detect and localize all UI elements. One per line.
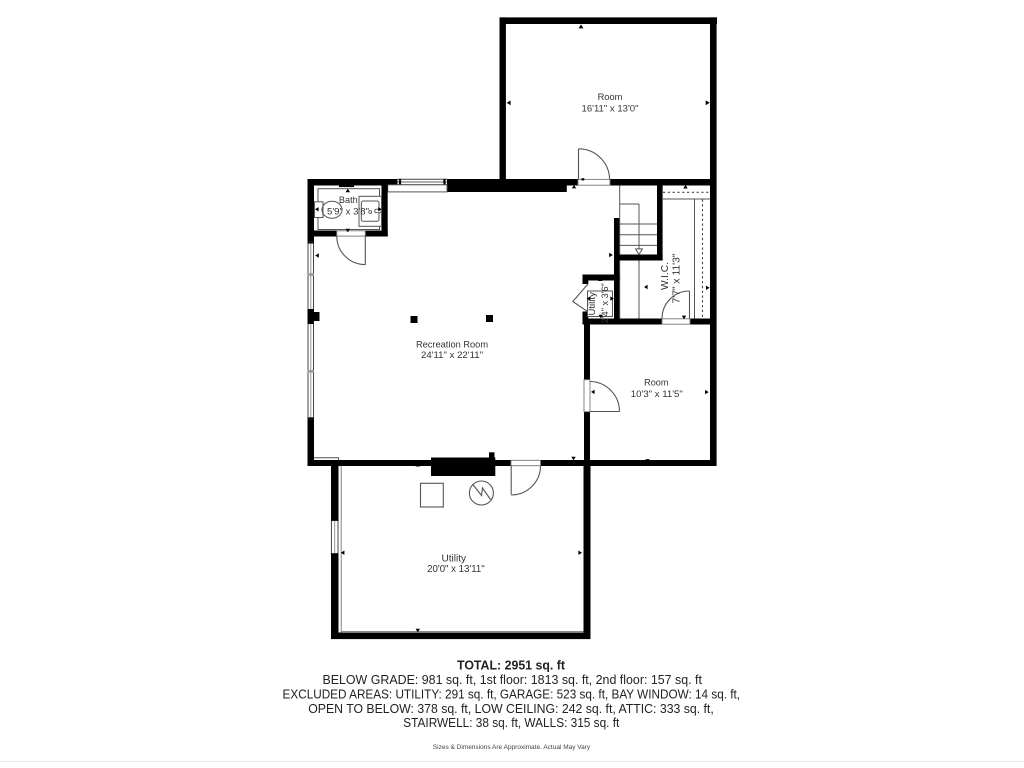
svg-text:Utility: Utility [587,291,597,315]
svg-text:BELOW GRADE: 981 sq. ft, 1st f: BELOW GRADE: 981 sq. ft, 1st floor: 1813… [322,673,702,687]
svg-text:Room: Room [598,91,623,102]
svg-text:OPEN TO BELOW: 378 sq. ft, LOW: OPEN TO BELOW: 378 sq. ft, LOW CEILING: … [308,702,714,716]
svg-text:16'11" x 13'0": 16'11" x 13'0" [582,102,639,113]
svg-text:W.I.C.: W.I.C. [660,262,671,290]
svg-text:Room: Room [644,376,668,387]
svg-text:EXCLUDED AREAS: UTILITY: 291 s: EXCLUDED AREAS: UTILITY: 291 sq. ft, GAR… [283,687,741,701]
svg-text:2'4" x 3'6": 2'4" x 3'6" [600,283,610,323]
svg-text:7'7" x 11'3": 7'7" x 11'3" [672,253,683,304]
svg-text:TOTAL: 2951 sq. ft: TOTAL: 2951 sq. ft [457,659,566,673]
svg-text:20'0" x 13'11": 20'0" x 13'11" [427,564,485,575]
svg-text:24'11" x 22'11": 24'11" x 22'11" [421,349,483,360]
svg-text:5'9" x 3'8": 5'9" x 3'8" [327,207,369,217]
svg-text:Sizes & Dimensions Are Approxi: Sizes & Dimensions Are Approximate. Actu… [433,744,591,751]
svg-text:STAIRWELL: 38 sq. ft, WALLS: 3: STAIRWELL: 38 sq. ft, WALLS: 315 sq. ft [403,716,619,730]
svg-text:10'3" x 11'5": 10'3" x 11'5" [631,388,683,399]
svg-text:Recreation Room: Recreation Room [416,338,488,349]
svg-text:Bath: Bath [339,195,358,205]
